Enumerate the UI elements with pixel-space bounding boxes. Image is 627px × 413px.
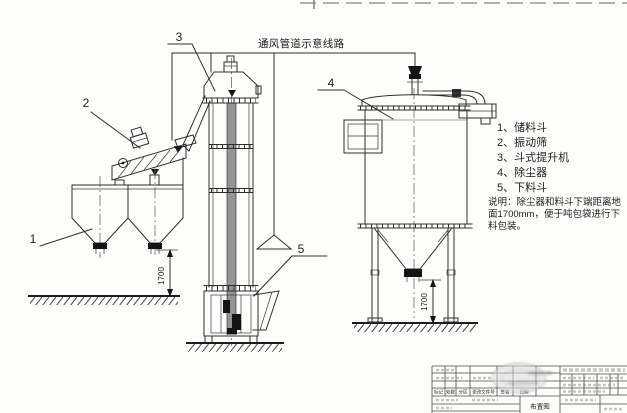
dimension-collector-clearance: 1700	[420, 279, 441, 324]
legend-item: 5、下料斗	[497, 180, 547, 194]
storage-hoppers	[72, 168, 183, 258]
cad-drawing-sheet: 通风管道示意线路	[0, 0, 627, 413]
sheet-border-fragment	[300, 0, 627, 9]
legend: 1、储料斗 2、振动筛 3、斗式提升机 4、除尘器 5、下料斗	[497, 120, 569, 194]
note-line: 面1700mm，便于吨包袋进行下	[488, 208, 620, 220]
note-line: 说明：除尘器和料斗下端距离地	[488, 196, 622, 208]
dim-text-left: 1700	[157, 267, 166, 285]
ventilation-duct-line: 通风管道示意线路	[172, 37, 415, 249]
bucket-elevator	[203, 56, 261, 346]
dimension-hopper-clearance: 1700	[156, 249, 178, 297]
callout-2: 2	[83, 96, 90, 110]
legend-item: 3、斗式提升机	[497, 150, 569, 164]
suction-hood	[257, 235, 291, 249]
legend-item: 2、振动筛	[497, 135, 547, 149]
note-line: 料包装。	[488, 220, 526, 232]
tb-cell: 标记	[434, 389, 443, 396]
layout-drawing: 通风管道示意线路	[0, 0, 627, 413]
callout-1: 1	[30, 232, 37, 246]
head-discharge-chute	[183, 96, 210, 151]
dim-text-right: 1700	[420, 293, 429, 311]
discharge-feed-chute	[253, 291, 279, 330]
legend-item: 1、储料斗	[497, 120, 547, 134]
dust-collector	[344, 66, 496, 322]
callout-3: 3	[176, 30, 183, 44]
callout-5: 5	[298, 242, 305, 256]
legend-item: 4、除尘器	[497, 165, 547, 179]
ground-hoppers	[28, 296, 180, 305]
tb-cell: 更改文件号	[472, 389, 495, 396]
ground-dust-collector	[352, 323, 478, 332]
stamp-watermark	[492, 363, 552, 393]
tb-cell: 处数	[446, 389, 455, 396]
tb-cell: 分区	[459, 389, 468, 396]
callout-4: 4	[328, 76, 335, 90]
ground-elevator	[186, 343, 284, 352]
note-text: 说明：除尘器和料斗下端距离地 面1700mm，便于吨包袋进行下 料包装。	[488, 196, 622, 232]
vent-line-label: 通风管道示意线路	[258, 37, 345, 50]
drawing-title: 布置图	[530, 402, 550, 411]
screen-motor	[128, 126, 149, 148]
control-box	[344, 120, 382, 153]
title-block: 标记 处数 分区 更改文件号 签名 日期 布置图	[432, 363, 627, 413]
vibrating-screen	[112, 126, 196, 185]
